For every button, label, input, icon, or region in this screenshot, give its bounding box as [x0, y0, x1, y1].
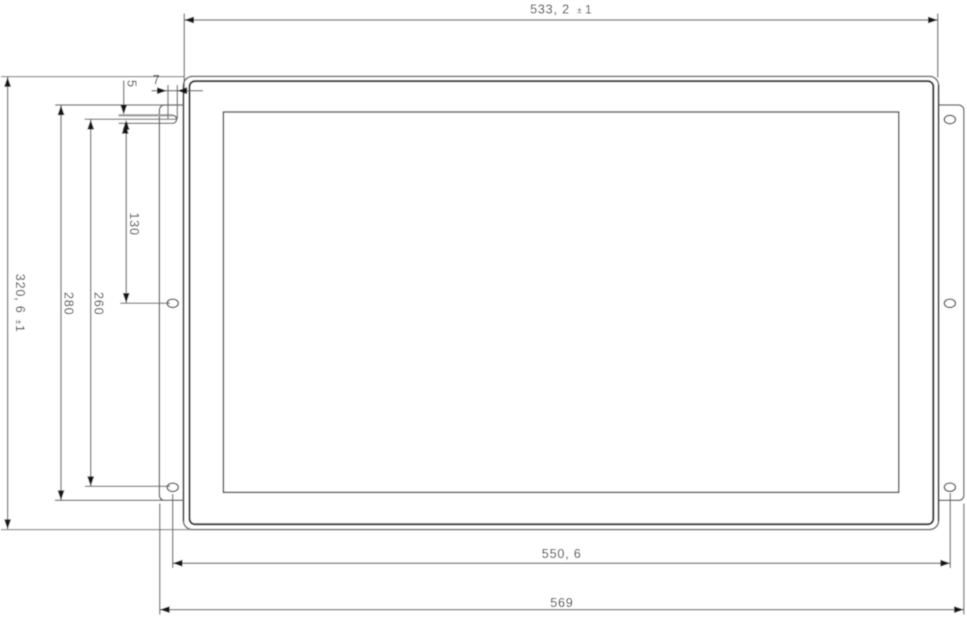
- svg-text:280: 280: [62, 292, 76, 315]
- svg-text:260: 260: [91, 292, 105, 315]
- svg-text:5: 5: [125, 80, 139, 87]
- svg-text:320, 6±1: 320, 6±1: [13, 274, 27, 333]
- svg-text:533, 2: 533, 2: [530, 2, 570, 16]
- svg-text:1: 1: [585, 2, 592, 16]
- svg-text:130: 130: [127, 212, 141, 235]
- svg-text:±: ±: [577, 5, 582, 15]
- svg-text:550, 6: 550, 6: [542, 547, 582, 561]
- svg-text:569: 569: [550, 596, 573, 610]
- svg-text:7: 7: [153, 73, 160, 87]
